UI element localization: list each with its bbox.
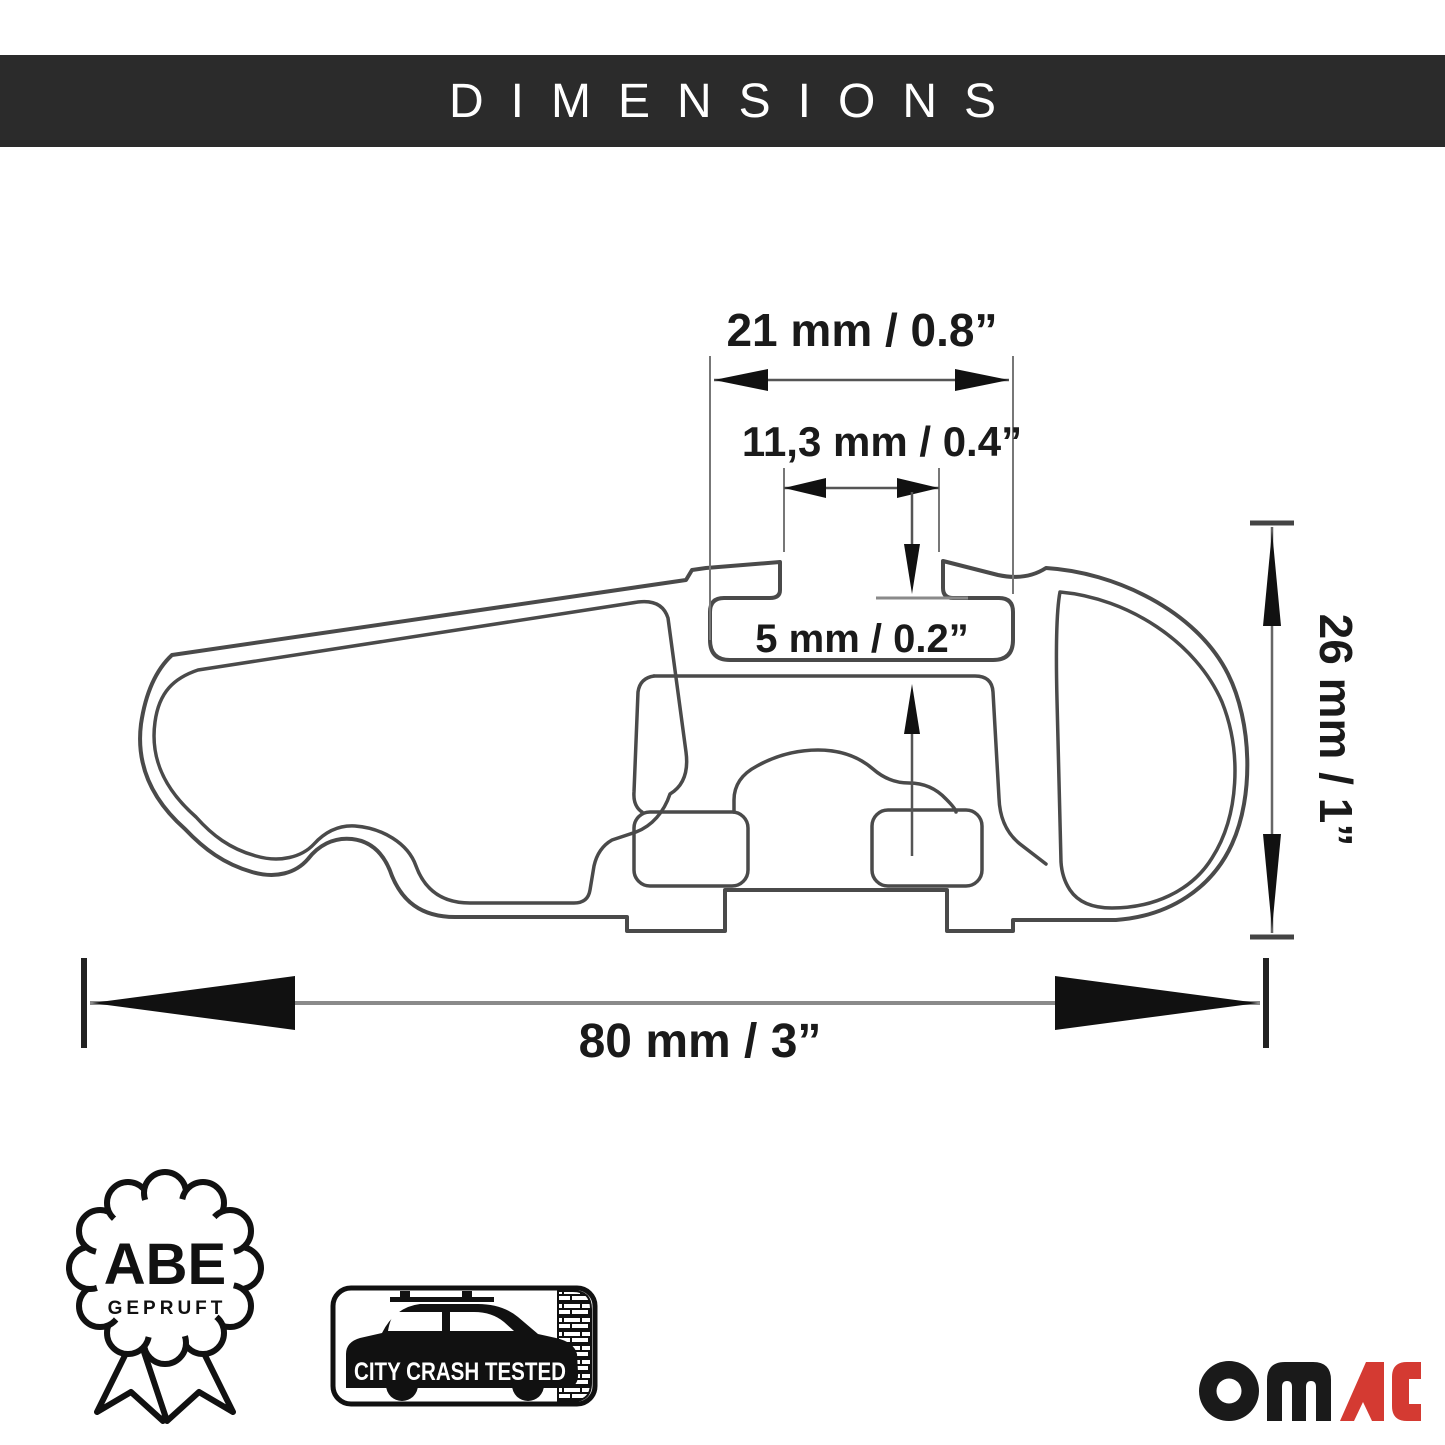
profile-omega-rib [734,750,956,812]
arrowhead-up-icon [904,684,920,734]
crash-test-badge: CITY CRASH TESTED [333,1288,595,1404]
dimension-profile-height: 26 mm / 1” [1250,523,1362,937]
arrowhead-right-icon [1055,976,1258,1030]
abe-badge-subtitle: GEPRUFT [108,1298,227,1319]
arrowhead-down-icon [904,544,920,594]
arrowhead-left-icon [714,369,768,391]
arrowhead-up-icon [1263,531,1281,626]
arrowhead-left-icon [784,478,826,498]
dimension-slot-opening-width: 11,3 mm / 0.4” [742,418,1022,552]
dimension-label: 11,3 mm / 0.4” [742,418,1022,465]
page: { "header": { "title": "DIMENSIONS", "ba… [0,0,1445,1445]
crash-test-label: CITY CRASH TESTED [354,1358,566,1386]
dimension-label: 80 mm / 3” [579,1015,822,1068]
dimensions-diagram: DIMENSIONS 21 mm / 0.8” 11,3 mm / 0.4” [0,0,1445,1445]
logo-letter-c [1392,1362,1421,1421]
dimension-wall-thickness: 5 mm / 0.2” [755,492,968,856]
logo-letter-m [1267,1362,1331,1421]
arrowhead-right-icon [897,478,939,498]
logo-letter-a [1340,1362,1384,1421]
profile-right-foot-cavity [872,810,982,886]
omac-logo: OMAC [1199,1361,1421,1421]
crossbar-profile-drawing [140,561,1247,931]
profile-outer-contour [140,561,1247,931]
arrowhead-right-icon [955,369,1009,391]
dimension-slot-inner-width: 21 mm / 0.8” [710,304,1013,640]
profile-right-d-cavity [1056,592,1235,908]
abe-badge-title: ABE [104,1232,226,1297]
arrowhead-left-icon [92,976,295,1030]
dimension-label: 5 mm / 0.2” [755,617,968,661]
dimension-label: 21 mm / 0.8” [726,304,997,356]
profile-middle-cavity-left-wall [634,676,654,812]
dimension-profile-width: 80 mm / 3” [84,958,1266,1068]
logo-letter-o-hole [1217,1379,1242,1404]
arrowhead-down-icon [1263,834,1281,929]
profile-slot-underside-wall [654,676,1046,864]
abe-badge: ABE GEPRUFT [69,1172,261,1421]
dimension-label: 26 mm / 1” [1310,614,1362,847]
